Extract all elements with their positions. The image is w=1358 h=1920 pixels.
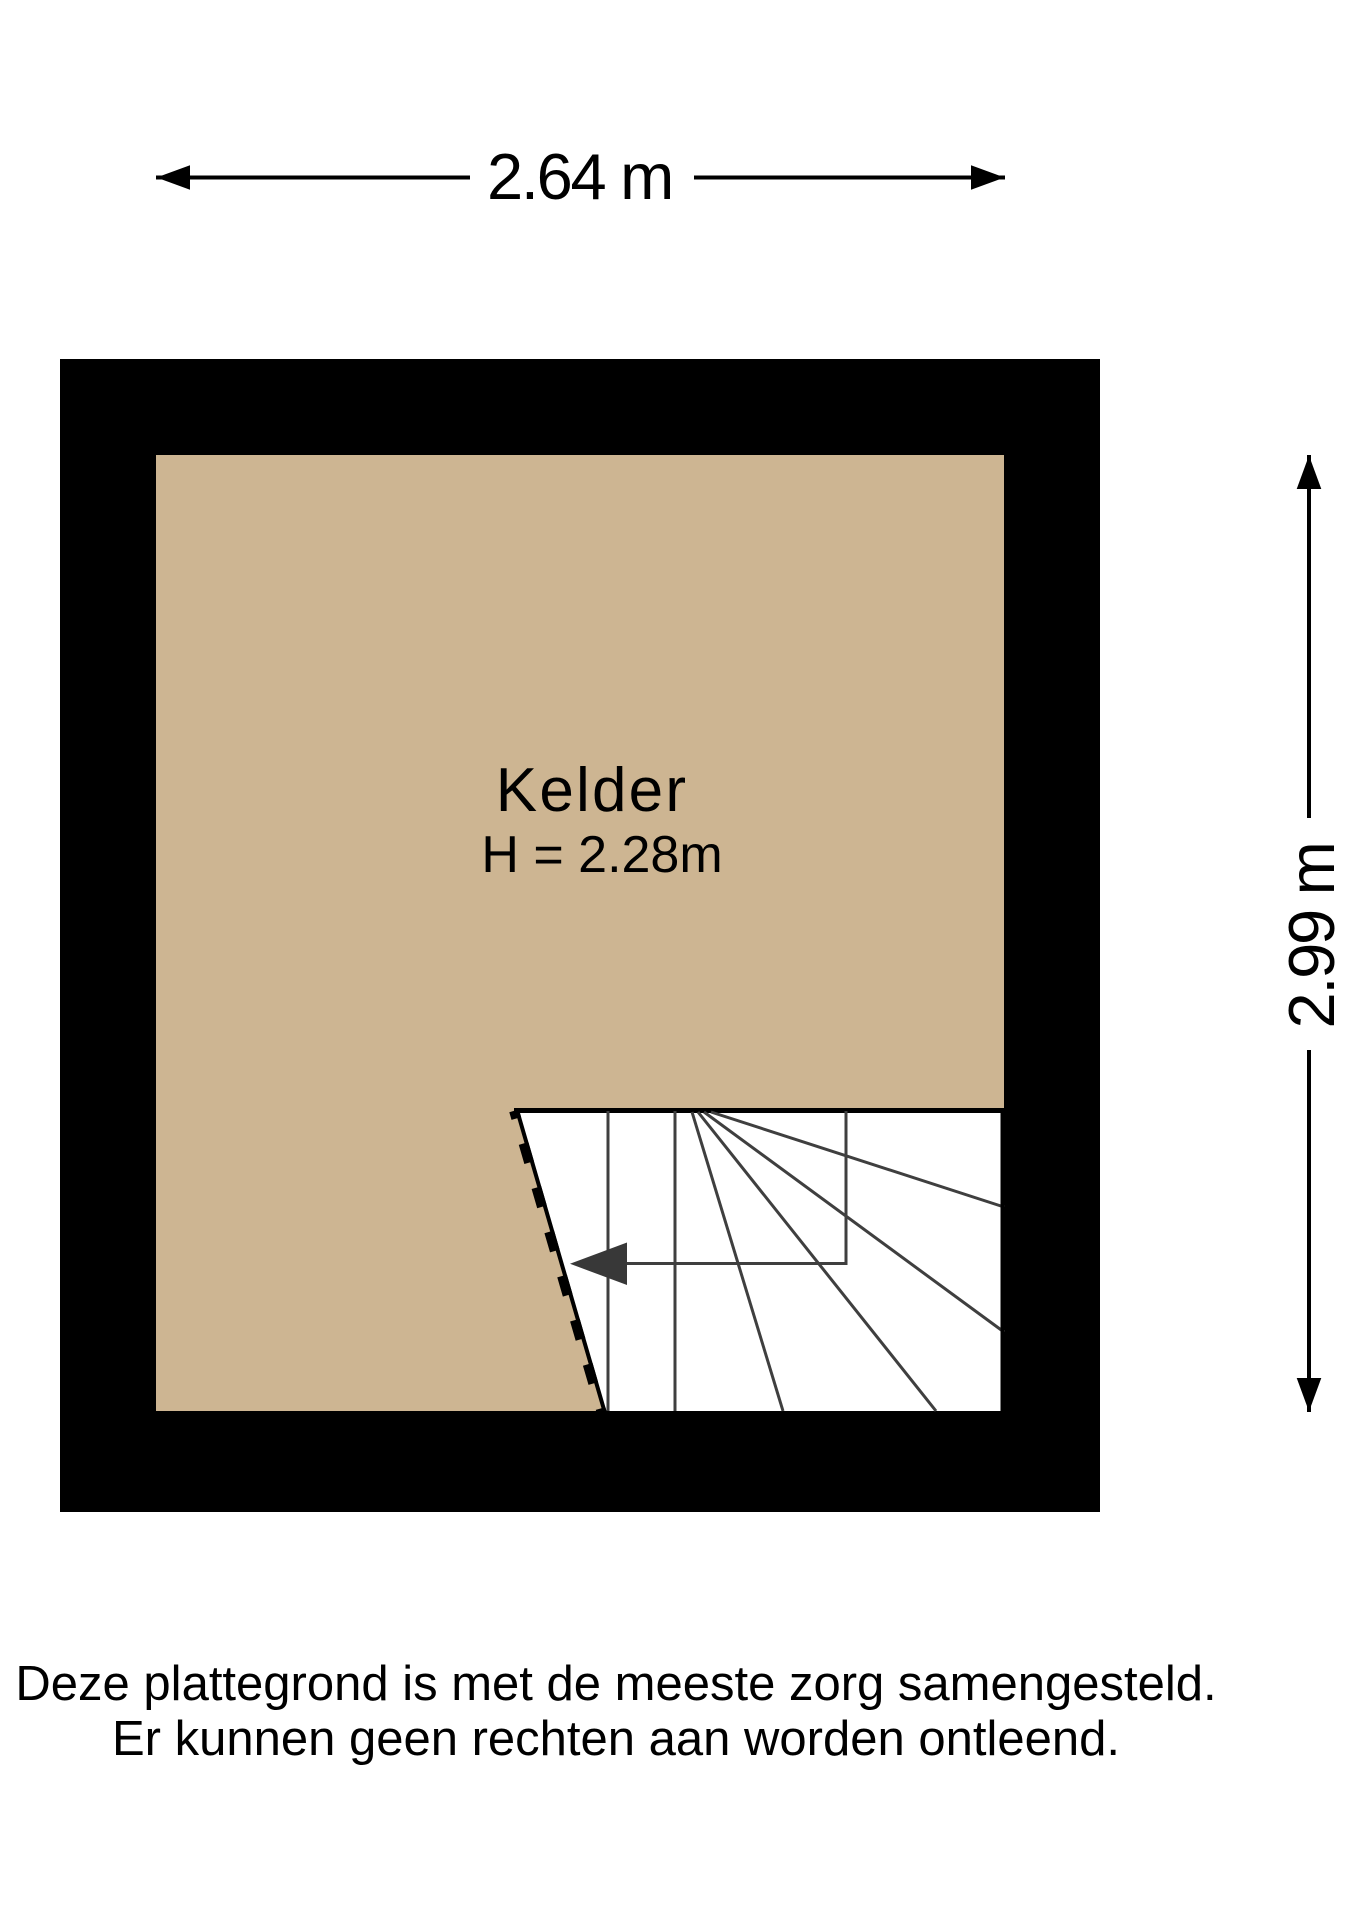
svg-text:2.64 m: 2.64 m [487, 140, 672, 213]
svg-text:Er kunnen geen rechten aan wor: Er kunnen geen rechten aan worden ontlee… [112, 1712, 1120, 1766]
svg-text:Deze plattegrond is met de mee: Deze plattegrond is met de meeste zorg s… [15, 1657, 1216, 1711]
svg-text:2.99 m: 2.99 m [1275, 844, 1348, 1029]
svg-text:H = 2.28m: H = 2.28m [481, 826, 722, 884]
svg-text:Kelder: Kelder [496, 756, 688, 825]
